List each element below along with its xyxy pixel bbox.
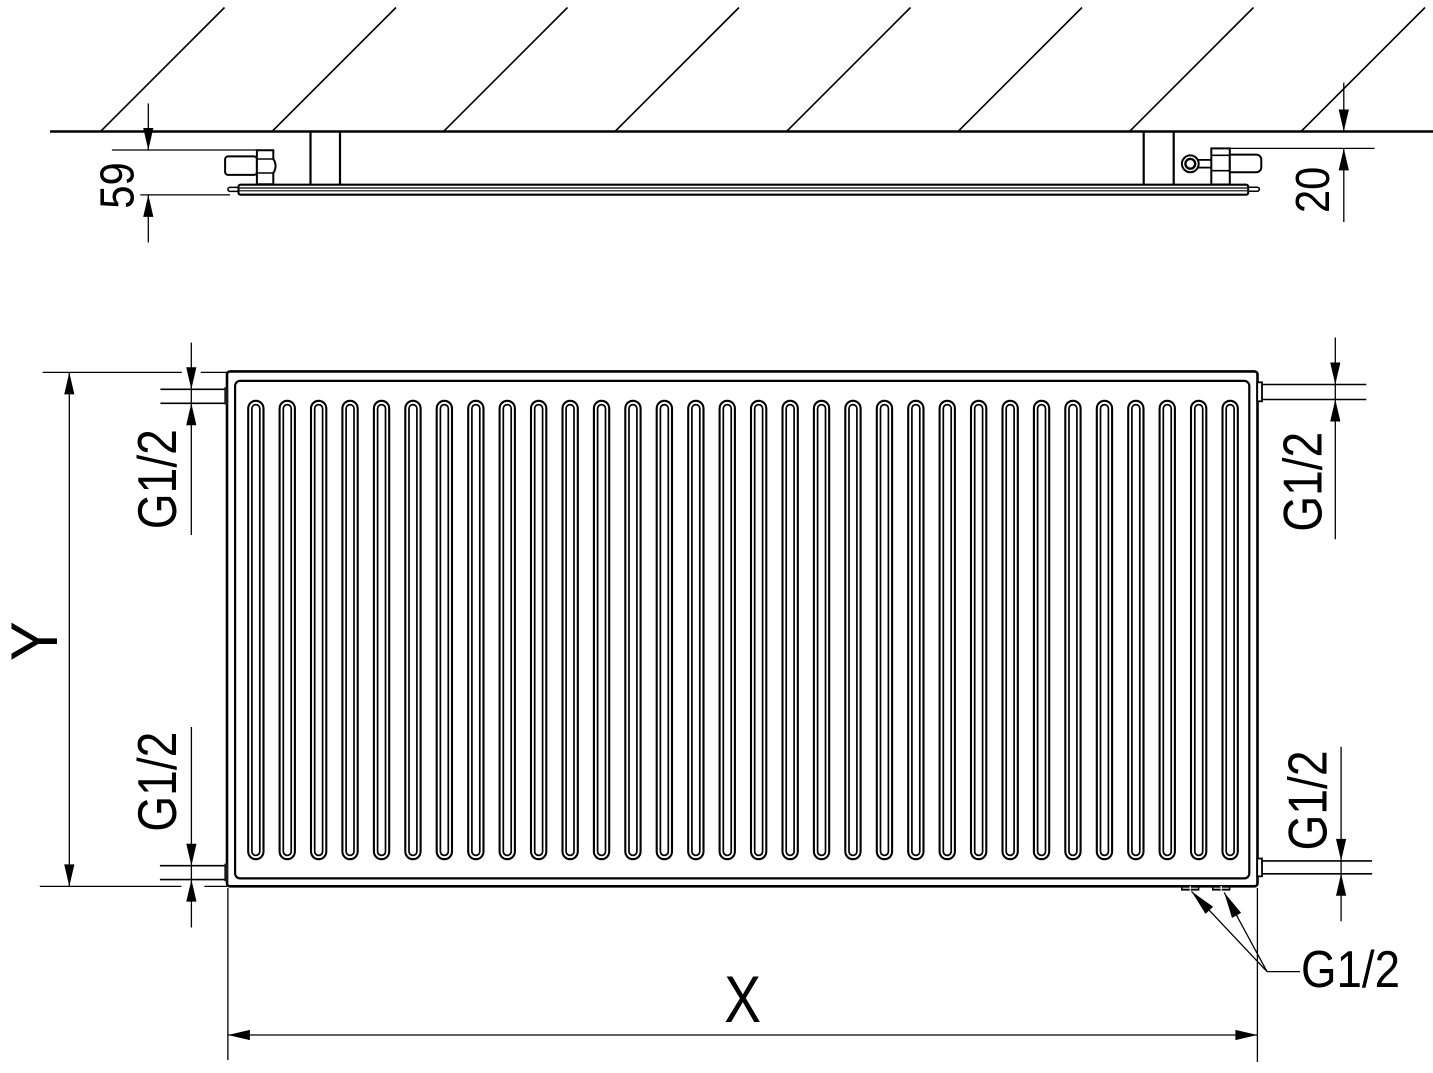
svg-text:G1/2: G1/2 xyxy=(1271,432,1333,532)
svg-text:G1/2: G1/2 xyxy=(1301,941,1400,999)
svg-text:G1/2: G1/2 xyxy=(126,429,188,529)
svg-text:20: 20 xyxy=(1287,167,1340,213)
svg-text:Y: Y xyxy=(0,621,71,661)
svg-text:G1/2: G1/2 xyxy=(1276,751,1338,851)
svg-text:X: X xyxy=(724,962,761,1036)
svg-text:59: 59 xyxy=(92,162,145,209)
svg-text:G1/2: G1/2 xyxy=(126,732,188,832)
